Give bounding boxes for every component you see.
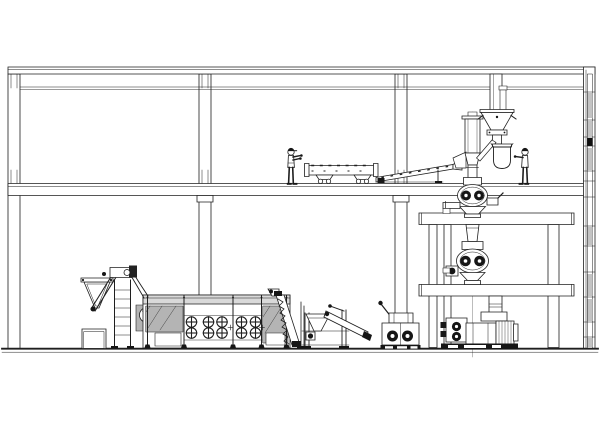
inclined-conveyor (376, 160, 462, 184)
second-floor-slab (8, 184, 585, 203)
vibrating-conveyor (305, 164, 379, 184)
column-left (8, 74, 20, 349)
column-mid-right (395, 74, 407, 349)
extruder (441, 312, 519, 350)
roof-duct (490, 74, 507, 112)
dust-bag (494, 147, 511, 169)
operator-conveyor (287, 148, 303, 185)
belt-dryer (136, 295, 290, 348)
drawing-canvas (0, 0, 600, 421)
vibrating-screener (301, 304, 372, 348)
right-wall (584, 67, 596, 349)
surge-bin (453, 112, 483, 178)
operator-bag-station (514, 148, 529, 185)
crate (82, 329, 106, 349)
elevation-drawing (0, 0, 600, 421)
